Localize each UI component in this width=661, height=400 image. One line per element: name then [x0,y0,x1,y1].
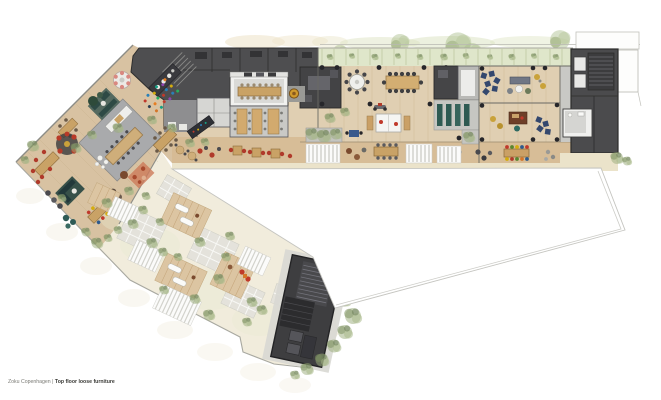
svg-text:Zoku Copenhagen | Top floor lo: Zoku Copenhagen | Top floor loose furnit… [8,379,115,385]
